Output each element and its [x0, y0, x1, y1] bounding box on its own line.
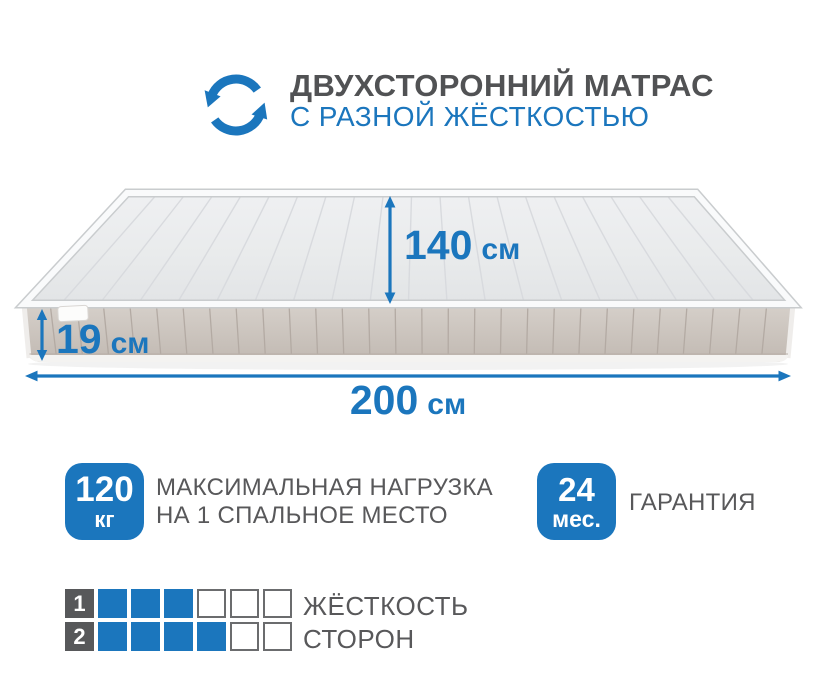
firmness-cell-filled — [197, 622, 226, 651]
height-unit: см — [111, 327, 150, 360]
firmness-cell-empty — [263, 589, 292, 618]
firmness-cell-empty — [263, 622, 292, 651]
warranty-value: 24 — [558, 473, 595, 506]
length-dimension-label: 200см — [0, 380, 816, 421]
firmness-cell-filled — [164, 589, 193, 618]
firmness-side-number: 2 — [65, 622, 94, 651]
max-load-value: 120 — [75, 472, 133, 507]
page-subtitle: С РАЗНОЙ ЖЁСТКОСТЬЮ — [290, 103, 649, 131]
height-dimension-label: 19см — [56, 319, 150, 360]
mattress-illustration — [0, 180, 816, 410]
warranty-unit: мес. — [552, 508, 601, 531]
firmness-cell-empty — [197, 589, 226, 618]
firmness-scale: 1 2 — [65, 589, 292, 655]
max-load-caption-line2: НА 1 СПАЛЬНОЕ МЕСТО — [156, 502, 493, 530]
length-value: 200 — [350, 377, 418, 423]
firmness-cell-empty — [230, 589, 259, 618]
firmness-cell-filled — [131, 589, 160, 618]
max-load-unit: кг — [94, 509, 114, 531]
height-value: 19 — [56, 316, 102, 362]
depth-value: 140 — [404, 222, 472, 268]
firmness-cell-empty — [230, 622, 259, 651]
page-title: ДВУХСТОРОННИЙ МАТРАС — [290, 70, 714, 101]
warranty-caption: ГАРАНТИЯ — [629, 489, 756, 517]
warranty-badge: 24 мес. — [537, 463, 616, 540]
max-load-badge: 120 кг — [65, 463, 144, 540]
firmness-label-line2: СТОРОН — [303, 626, 415, 652]
firmness-row-side2: 2 — [65, 622, 292, 651]
firmness-cell-filled — [98, 589, 127, 618]
firmness-cell-filled — [164, 622, 193, 651]
length-unit: см — [427, 388, 466, 421]
rotate-sync-icon — [202, 71, 270, 139]
firmness-label-line1: ЖЁСТКОСТЬ — [303, 593, 469, 619]
firmness-cell-filled — [98, 622, 127, 651]
firmness-side-number: 1 — [65, 589, 94, 618]
max-load-caption-line1: МАКСИМАЛЬНАЯ НАГРУЗКА — [156, 474, 493, 502]
max-load-caption: МАКСИМАЛЬНАЯ НАГРУЗКА НА 1 СПАЛЬНОЕ МЕСТ… — [156, 474, 493, 530]
firmness-cell-filled — [131, 622, 160, 651]
firmness-row-side1: 1 — [65, 589, 292, 618]
mattress-infographic: ДВУХСТОРОННИЙ МАТРАС С РАЗНОЙ ЖЁСТКОСТЬЮ — [0, 0, 816, 700]
depth-dimension-label: 140см — [404, 225, 520, 266]
depth-unit: см — [481, 233, 520, 266]
